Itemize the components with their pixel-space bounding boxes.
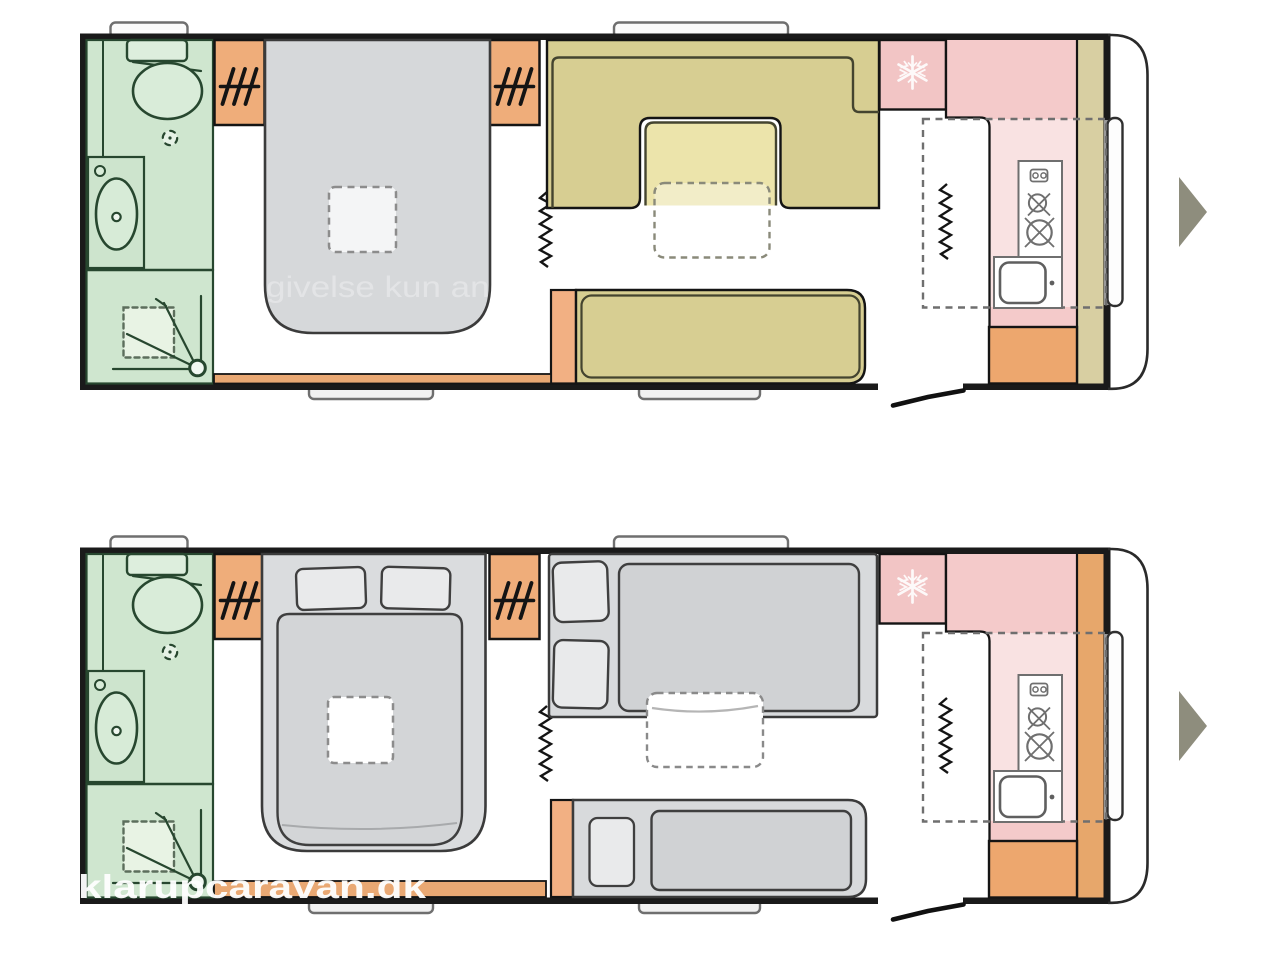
svg-text:klarupcaravan.dk: klarupcaravan.dk — [78, 869, 426, 906]
svg-text:givelse kun ann: givelse kun ann — [266, 271, 509, 304]
